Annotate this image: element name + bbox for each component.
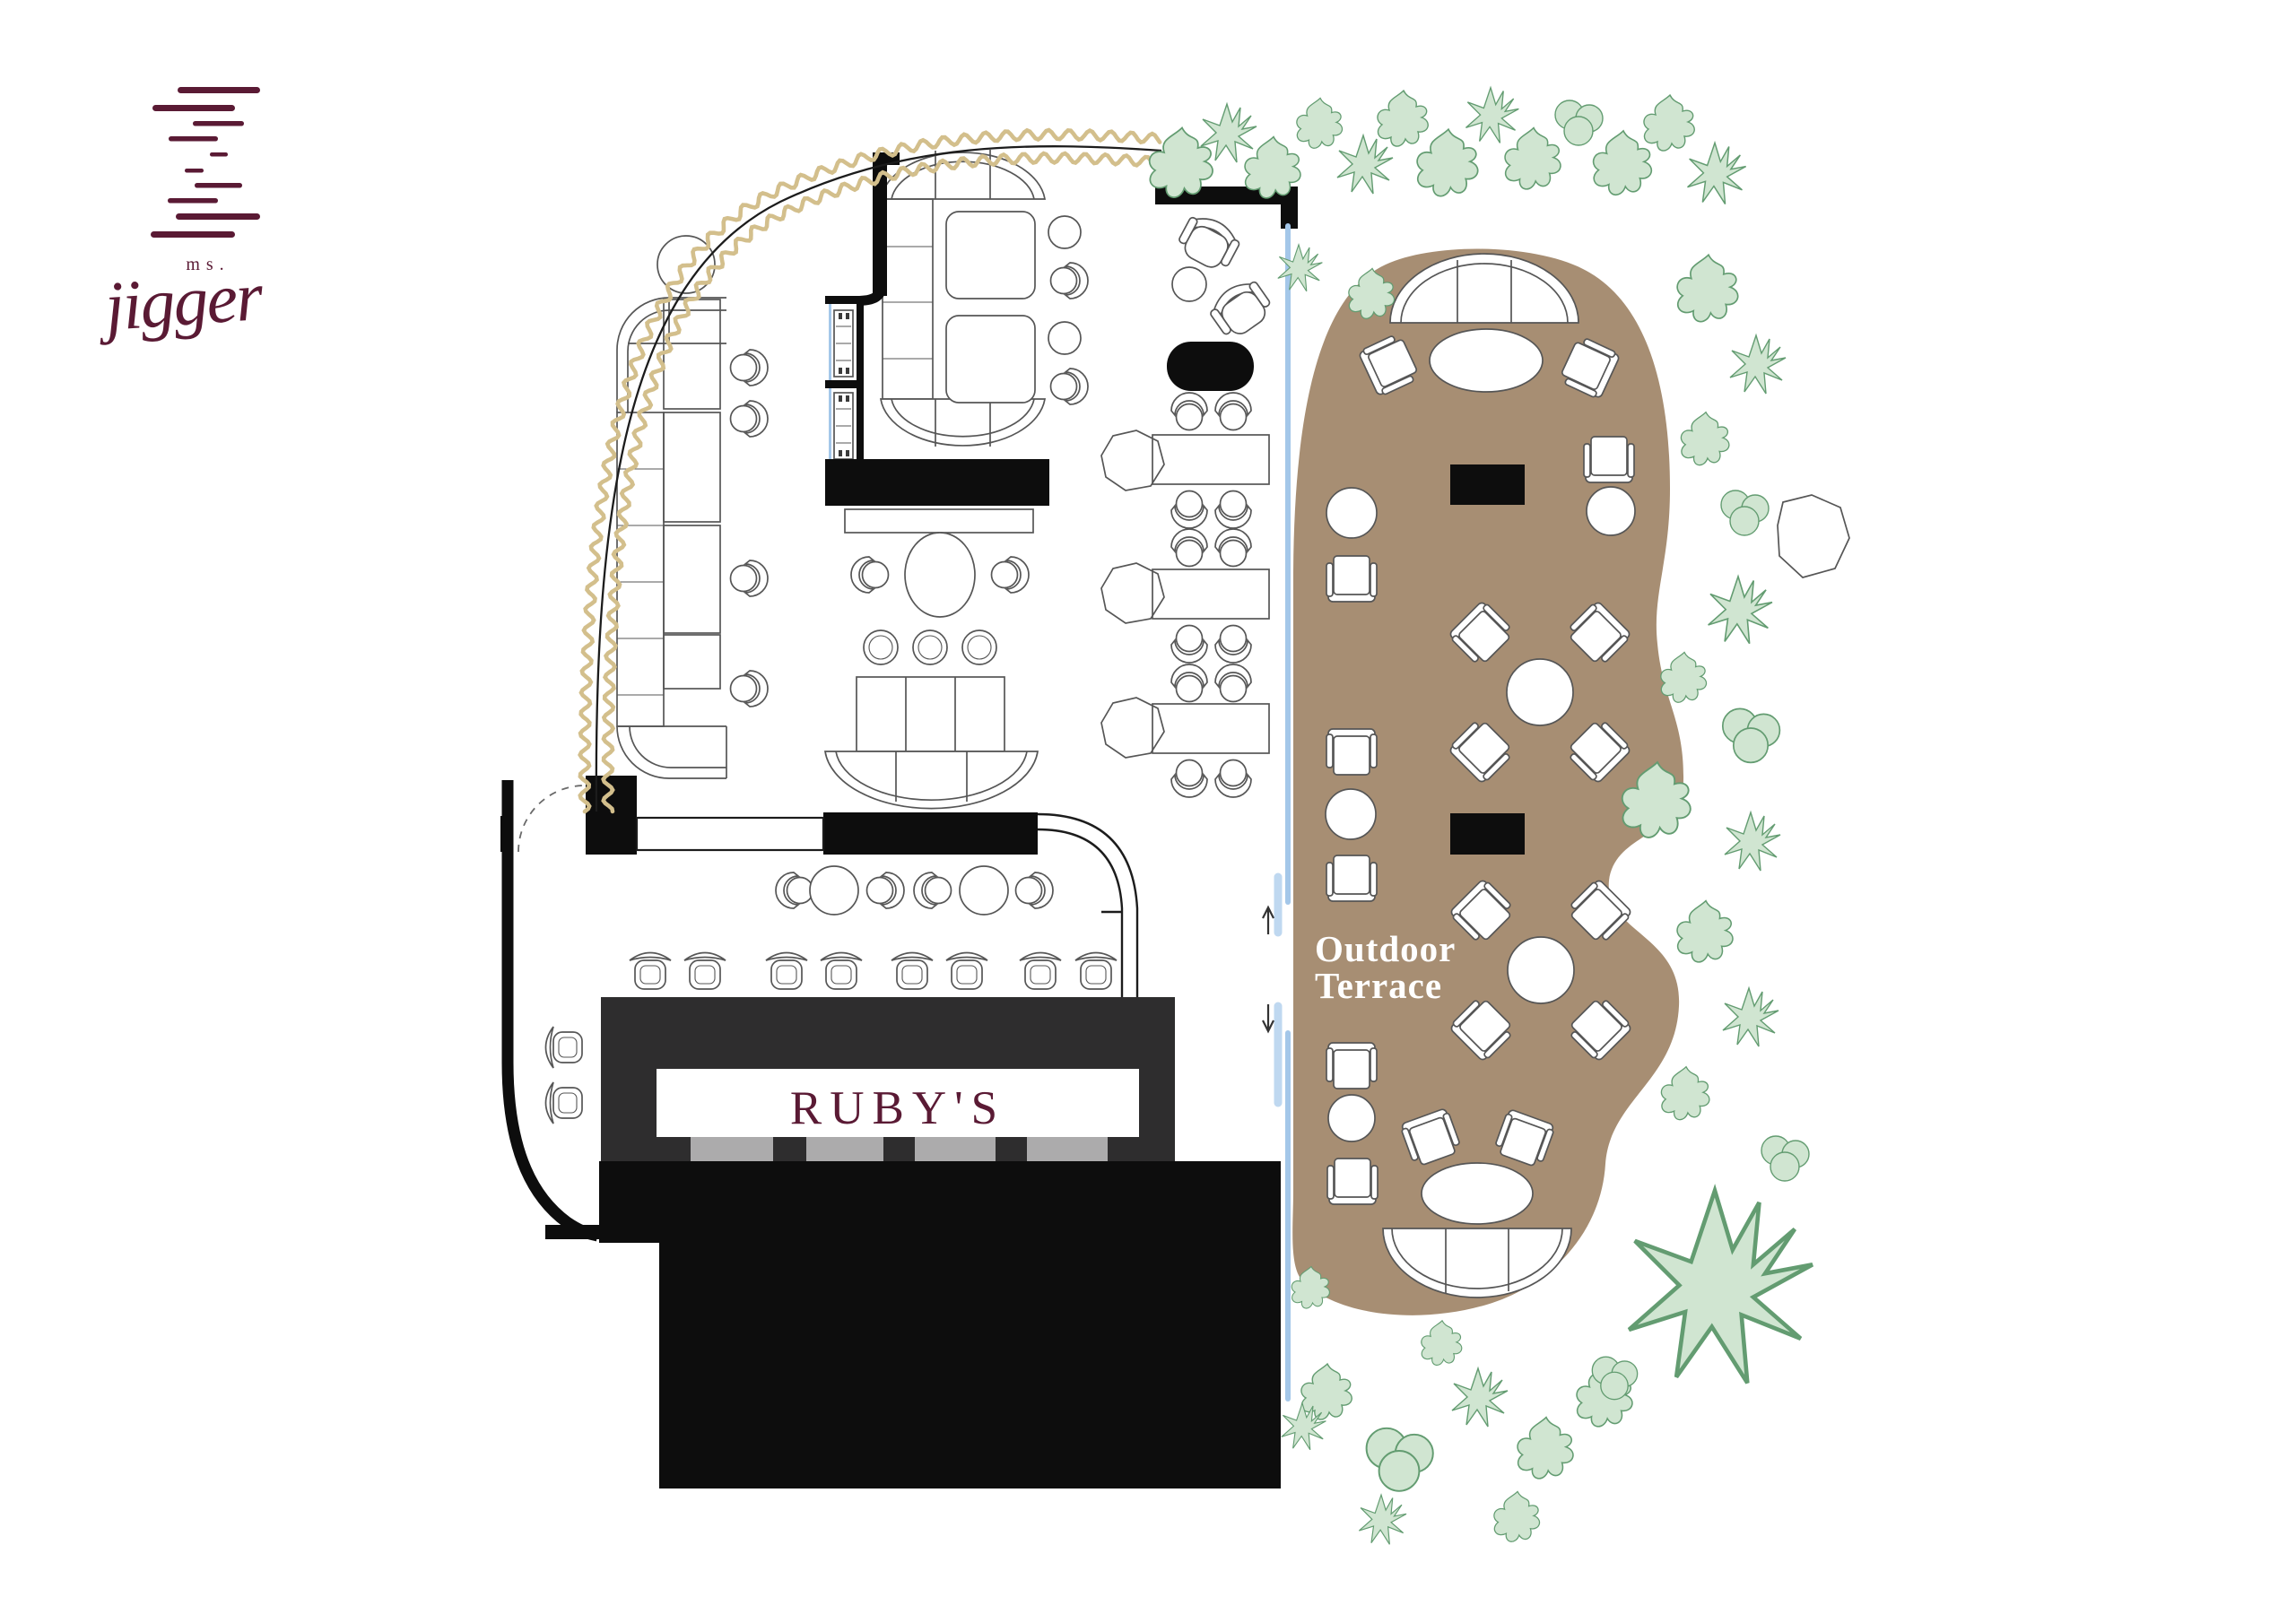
bar-stool	[1075, 953, 1117, 990]
high-table	[960, 866, 1008, 915]
glass-accent	[829, 388, 831, 459]
side-table	[1048, 322, 1081, 354]
terrace-chair	[1326, 556, 1377, 602]
service-counter	[825, 459, 1049, 506]
bar-stool	[630, 953, 671, 990]
plant	[1505, 128, 1561, 189]
half-round-booth	[825, 751, 1038, 809]
rock-planter	[1778, 495, 1849, 577]
wall-ledge	[825, 380, 864, 388]
door-direction-down-icon	[1263, 1004, 1274, 1031]
door-direction-up-icon	[1263, 907, 1274, 934]
plant	[1730, 335, 1786, 394]
chair	[1051, 369, 1089, 404]
plant	[1629, 1191, 1813, 1384]
plant	[1518, 1418, 1573, 1479]
plant	[1367, 1428, 1433, 1491]
bar-stool	[946, 953, 987, 990]
plant	[1297, 98, 1343, 148]
plant	[1681, 412, 1728, 465]
black-pill-table	[1167, 342, 1254, 391]
plant	[1378, 91, 1428, 146]
terrace-round-table	[1326, 789, 1376, 839]
terrace-label-line1: Outdoor	[1315, 928, 1456, 969]
wall-ledge	[545, 1225, 601, 1239]
terrace-chair	[1326, 855, 1377, 901]
indoor-furniture	[546, 150, 1276, 1124]
terrace-chair	[1327, 1159, 1378, 1204]
booth-table	[946, 212, 1035, 299]
terrace-oval-table	[1430, 329, 1543, 392]
bottle-shelf	[834, 393, 853, 459]
terrace-chair	[1326, 1043, 1377, 1089]
plant	[1661, 652, 1707, 702]
terrace-black-table	[1450, 813, 1525, 855]
bar-name-label: RUBY'S	[790, 1082, 1005, 1134]
stool	[864, 630, 898, 664]
plant	[1452, 1368, 1508, 1427]
bottle-shelf	[834, 310, 853, 377]
terrace-label-line2: Terrace	[1315, 965, 1442, 1006]
terrace-round-table	[1328, 1095, 1375, 1141]
chair	[1051, 263, 1089, 299]
terrace-oval-table	[1422, 1163, 1533, 1224]
chair	[992, 557, 1030, 593]
bar-stool	[1020, 953, 1061, 990]
plant	[1594, 131, 1652, 195]
window-tables	[1101, 393, 1269, 797]
stool	[913, 630, 947, 664]
logo-name: jigger	[94, 256, 266, 346]
plant	[1417, 129, 1478, 195]
plant	[1677, 255, 1738, 321]
chair	[867, 872, 905, 908]
plant	[1359, 1495, 1406, 1544]
terrace-black-table	[1450, 464, 1525, 505]
plant	[1723, 988, 1779, 1046]
bar-stool	[821, 953, 862, 990]
round-table	[905, 533, 975, 617]
plant	[1761, 1136, 1809, 1181]
plant	[1278, 245, 1323, 291]
terrace-floor	[1292, 249, 1683, 1315]
stool	[962, 630, 996, 664]
chair	[914, 872, 952, 908]
bar-area: RUBY'S	[601, 997, 1175, 1161]
plant	[1725, 812, 1780, 871]
terrace-label: Outdoor Terrace	[1315, 928, 1456, 1006]
plant	[1677, 901, 1733, 962]
plant	[1555, 100, 1603, 145]
plant	[1688, 143, 1746, 204]
logo-lines-icon	[151, 87, 260, 238]
plant	[1494, 1491, 1540, 1541]
door-swing	[518, 785, 585, 852]
side-table	[1172, 267, 1206, 301]
terrace-chair	[1326, 729, 1377, 775]
bar-stool	[684, 953, 726, 990]
lounge-chair	[1205, 274, 1276, 343]
chair	[731, 401, 769, 437]
bar-stool	[546, 1082, 583, 1124]
wall-outline	[637, 818, 823, 850]
curved-wall	[508, 780, 597, 1236]
terrace-round-table	[1326, 488, 1377, 538]
chair	[731, 350, 769, 386]
bar-stool	[546, 1027, 583, 1068]
side-table	[1048, 216, 1081, 248]
terrace-round-table	[1587, 487, 1635, 535]
plant	[1661, 1067, 1709, 1120]
plant	[1644, 95, 1694, 151]
wall-ledge	[825, 296, 864, 304]
terrace-chair	[1584, 437, 1634, 482]
brand-logo: ms. jigger	[94, 87, 266, 346]
plant	[1721, 490, 1769, 535]
floor-plan: RUBY'S	[0, 0, 2296, 1623]
plant	[1709, 577, 1772, 644]
glass-accent	[829, 304, 831, 380]
lounge-chair	[1174, 210, 1244, 275]
plant	[1723, 708, 1780, 762]
plant	[1301, 1364, 1352, 1419]
booth-table	[946, 316, 1035, 403]
chair	[731, 671, 769, 707]
counter	[823, 812, 1038, 855]
chair	[776, 872, 813, 908]
table	[857, 677, 1004, 751]
plant	[1422, 1321, 1462, 1366]
chair	[851, 557, 889, 593]
bar-stool	[766, 953, 807, 990]
plant	[1337, 135, 1393, 194]
bar-stool	[891, 953, 933, 990]
chair	[1016, 872, 1054, 908]
plant	[1465, 88, 1518, 143]
floor-plan-page: RUBY'S	[0, 0, 2296, 1623]
high-table	[810, 866, 858, 915]
chair	[731, 560, 769, 596]
service-shelf	[845, 509, 1033, 533]
boh-block	[599, 1161, 1281, 1488]
